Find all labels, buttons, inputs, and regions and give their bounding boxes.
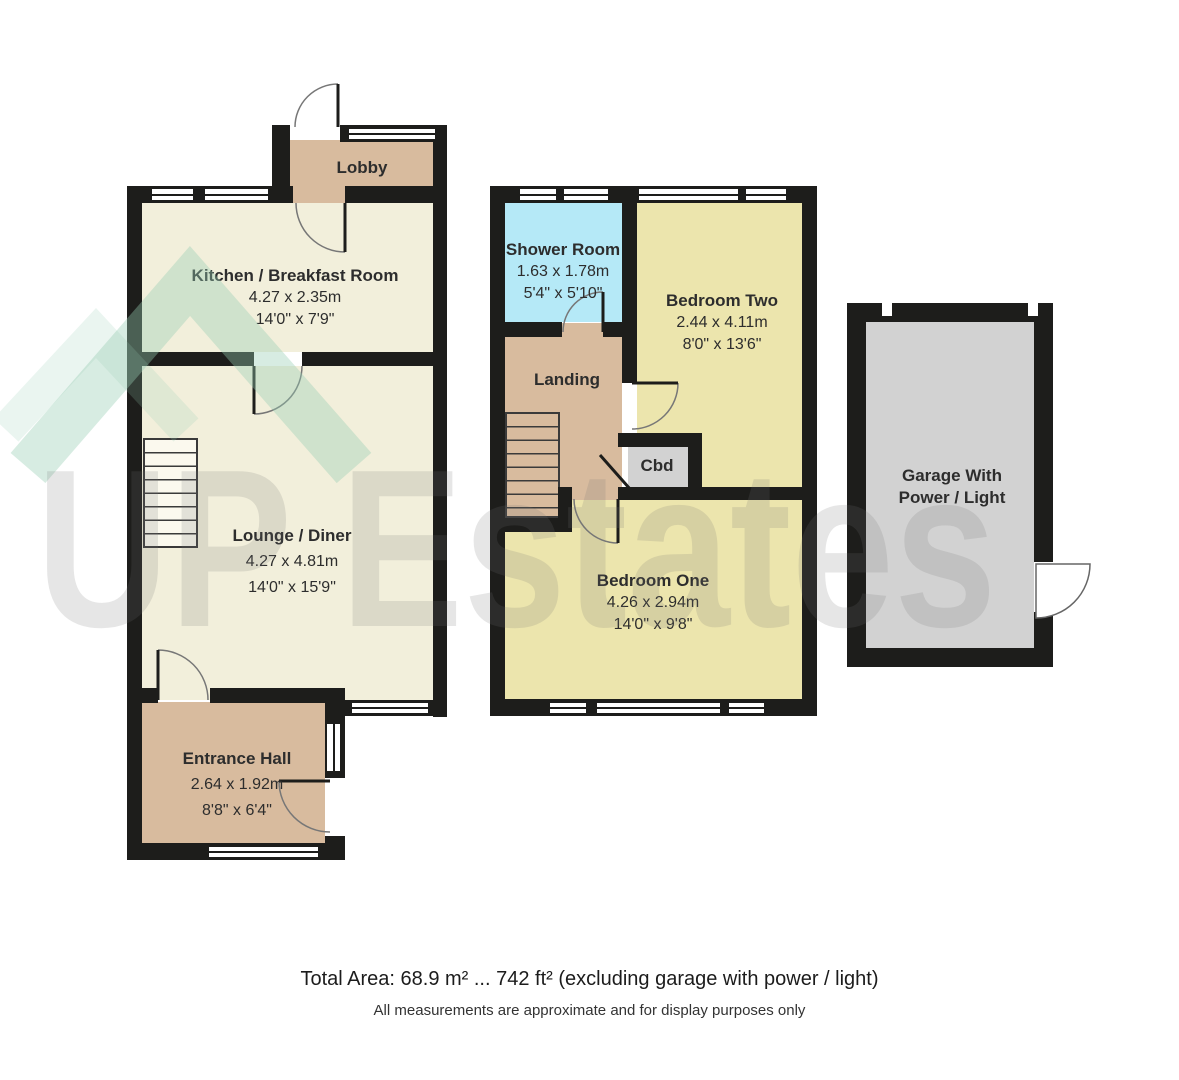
- label-shower-room: Shower Room 1.63 x 1.78m 5'4" x 5'10": [506, 239, 620, 305]
- label-kitchen: Kitchen / Breakfast Room 4.27 x 2.35m 14…: [192, 265, 399, 331]
- label-entrance-hall: Entrance Hall 2.64 x 1.92m 8'8" x 6'4": [183, 746, 292, 824]
- label-bedroom-one: Bedroom One 4.26 x 2.94m 14'0" x 9'8": [597, 570, 709, 636]
- door-arc-lobby-kitchen: [296, 203, 345, 252]
- label-garage: Garage With Power / Light: [899, 465, 1006, 509]
- label-lobby: Lobby: [337, 157, 388, 179]
- label-lounge: Lounge / Diner 4.27 x 4.81m 14'0" x 15'9…: [233, 523, 352, 601]
- door-arc-lounge-entrance: [158, 650, 208, 700]
- door-arc-bedroom-two: [632, 383, 678, 429]
- disclaimer-text: All measurements are approximate and for…: [0, 1002, 1179, 1019]
- label-bedroom-two: Bedroom Two 2.44 x 4.11m 8'0" x 13'6": [666, 290, 778, 356]
- label-landing: Landing: [534, 369, 600, 391]
- label-cbd: Cbd: [640, 455, 673, 477]
- door-arcs: [0, 0, 1179, 1080]
- door-arc-garage: [1036, 564, 1090, 618]
- door-leaf-cbd: [600, 455, 630, 489]
- door-arc-kitchen-lounge: [254, 366, 302, 414]
- door-arc-lobby-entry: [295, 84, 338, 127]
- total-area-text: Total Area: 68.9 m² ... 742 ft² (excludi…: [0, 968, 1179, 991]
- floorplan-canvas: Lobby Kitchen / Breakfast Room 4.27 x 2.…: [0, 0, 1179, 1080]
- door-arc-bedroom-one: [574, 499, 618, 543]
